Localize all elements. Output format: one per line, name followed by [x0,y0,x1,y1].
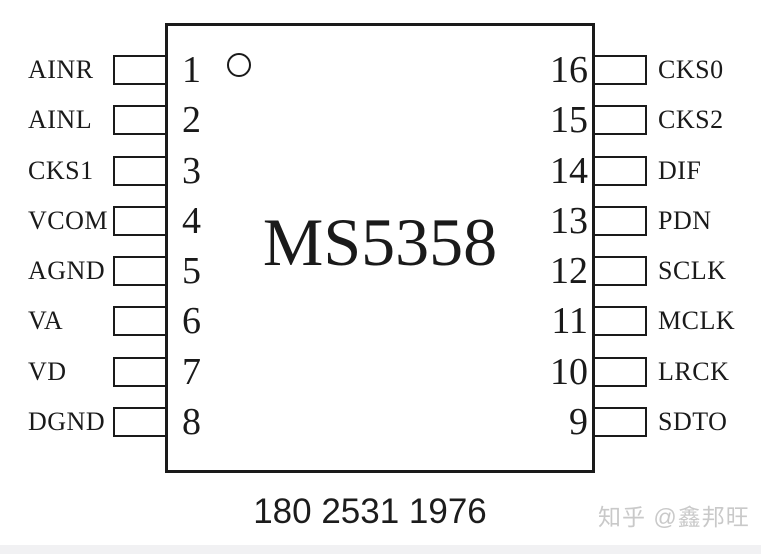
pin-row: PDN [595,206,761,236]
pin-row: CKS1 [0,156,165,186]
pin-label: VCOM [28,206,108,236]
pin-number: 4 [182,206,252,236]
pin-row: AGND [0,256,165,286]
pin-number: 16 [498,55,588,85]
pin-label: LRCK [658,357,729,387]
pin-label: AINR [28,55,94,85]
pin-label: CKS0 [658,55,724,85]
pin-label: MCLK [658,306,735,336]
pin-number: 5 [182,256,252,286]
pin-number: 13 [498,206,588,236]
pin-row: SDTO [595,407,761,437]
pin-number: 15 [498,105,588,135]
pin-box [113,55,165,85]
pin-box [113,306,165,336]
pin-row: AINR [0,55,165,85]
pin-box [595,306,647,336]
pin-row: MCLK [595,306,761,336]
right-pin-column: CKS0 CKS2 DIF PDN SCLK MCLK LRCK SDTO [595,55,761,437]
pin-row: SCLK [595,256,761,286]
pin-label: DGND [28,407,105,437]
right-pin-numbers: 16 15 14 13 12 11 10 9 [498,55,588,437]
pin-label: CKS1 [28,156,94,186]
pin-number: 12 [498,256,588,286]
pin-row: VA [0,306,165,336]
pin-box [595,407,647,437]
pin-row: CKS2 [595,105,761,135]
pin-number: 7 [182,357,252,387]
phone-number: 180 2531 1976 [158,492,582,532]
pin-number: 8 [182,407,252,437]
pin-number: 10 [498,357,588,387]
watermark: 知乎 @鑫邦旺 [598,504,750,530]
pin-label: PDN [658,206,712,236]
pin-box [595,256,647,286]
pin-row: VD [0,357,165,387]
pin-label: CKS2 [658,105,724,135]
pin-box [113,206,165,236]
pin-number: 11 [498,306,588,336]
pin-box [595,55,647,85]
pin-number: 9 [498,407,588,437]
pin-label: VA [28,306,63,336]
pin-number: 14 [498,156,588,186]
pin-box [113,105,165,135]
pin-number: 3 [182,156,252,186]
pin-label: AGND [28,256,105,286]
pin-label: VD [28,357,67,387]
pin-number: 2 [182,105,252,135]
pin-row: DIF [595,156,761,186]
left-pin-column: AINR AINL CKS1 VCOM AGND VA VD DGND [0,55,165,437]
pin-box [113,256,165,286]
pin-row: LRCK [595,357,761,387]
left-pin-numbers: 1 2 3 4 5 6 7 8 [182,55,252,437]
pin-box [113,407,165,437]
pin-box [113,156,165,186]
pin-number: 6 [182,306,252,336]
pin-row: CKS0 [595,55,761,85]
pin-row: VCOM [0,206,165,236]
pinout-diagram: MS5358 AINR AINL CKS1 VCOM AGND VA VD [0,0,761,554]
pin-label: SCLK [658,256,726,286]
pin-row: AINL [0,105,165,135]
pin-box [595,105,647,135]
pin-row: DGND [0,407,165,437]
pin-label: DIF [658,156,701,186]
pin-label: SDTO [658,407,727,437]
pin-label: AINL [28,105,92,135]
pin-number: 1 [182,55,252,85]
bottom-band [0,545,761,554]
pin-box [113,357,165,387]
pin-box [595,357,647,387]
pin-box [595,156,647,186]
pin-box [595,206,647,236]
